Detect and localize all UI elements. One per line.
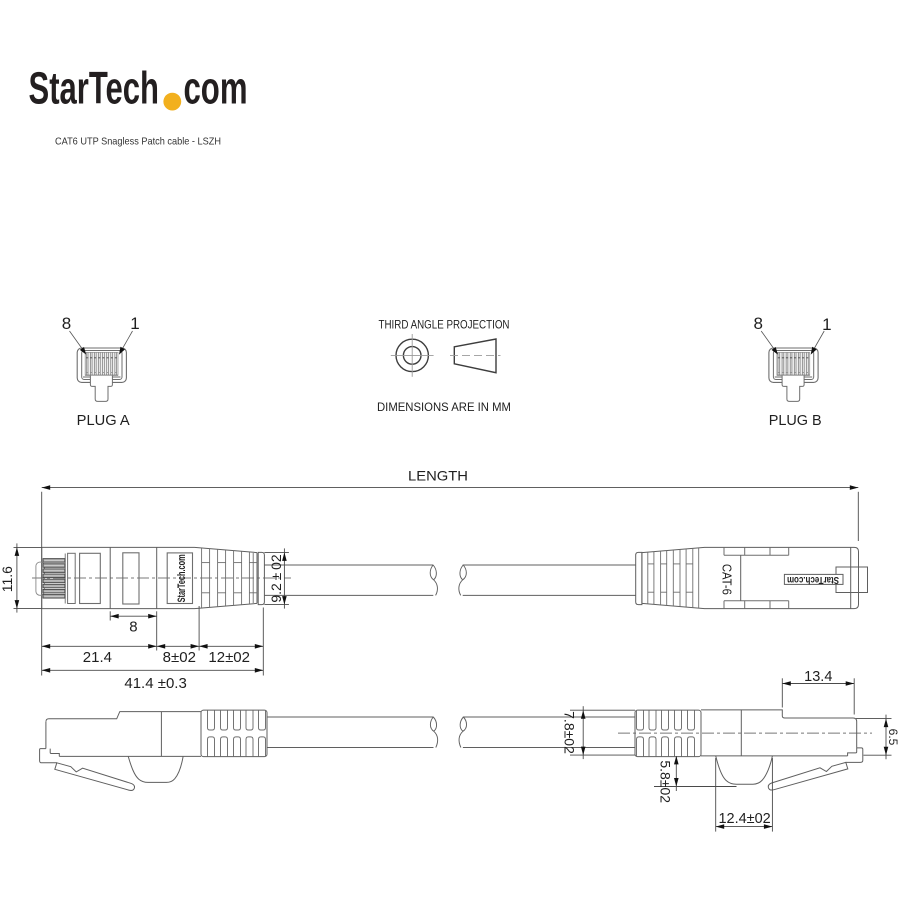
svg-text:DIMENSIONS ARE IN MM: DIMENSIONS ARE IN MM [377, 402, 511, 414]
svg-text:StarTech: StarTech [29, 62, 160, 113]
svg-text:12.4±02: 12.4±02 [718, 811, 770, 827]
svg-text:THIRD ANGLE PROJECTION: THIRD ANGLE PROJECTION [379, 319, 510, 331]
svg-text:1: 1 [822, 315, 831, 334]
svg-text:PLUG B: PLUG B [769, 413, 822, 429]
svg-text:21.4: 21.4 [83, 649, 112, 666]
svg-text:8: 8 [62, 314, 71, 333]
svg-text:9.2 ± 02: 9.2 ± 02 [268, 554, 284, 603]
svg-text:PLUG A: PLUG A [77, 413, 130, 429]
svg-text:5.8±02: 5.8±02 [657, 760, 673, 803]
svg-text:StarTech.com: StarTech.com [787, 574, 839, 585]
svg-text:CAT-6: CAT-6 [719, 564, 733, 595]
svg-text:41.4 ±0.3: 41.4 ±0.3 [124, 675, 186, 692]
svg-text:12±02: 12±02 [208, 649, 250, 666]
svg-text:8: 8 [753, 314, 762, 333]
svg-text:11.6: 11.6 [0, 566, 15, 592]
svg-text:8: 8 [129, 618, 137, 635]
svg-text:LENGTH: LENGTH [408, 468, 468, 484]
svg-text:7.8±02: 7.8±02 [561, 711, 577, 754]
svg-text:StarTech.com: StarTech.com [176, 554, 188, 602]
svg-text:6.5: 6.5 [886, 729, 900, 746]
svg-text:CAT6 UTP Snagless Patch cable: CAT6 UTP Snagless Patch cable - LSZH [55, 135, 221, 147]
svg-text:1: 1 [130, 314, 139, 333]
svg-text:8±02: 8±02 [163, 649, 196, 666]
svg-text:13.4: 13.4 [804, 669, 832, 685]
svg-text:com: com [184, 62, 248, 113]
